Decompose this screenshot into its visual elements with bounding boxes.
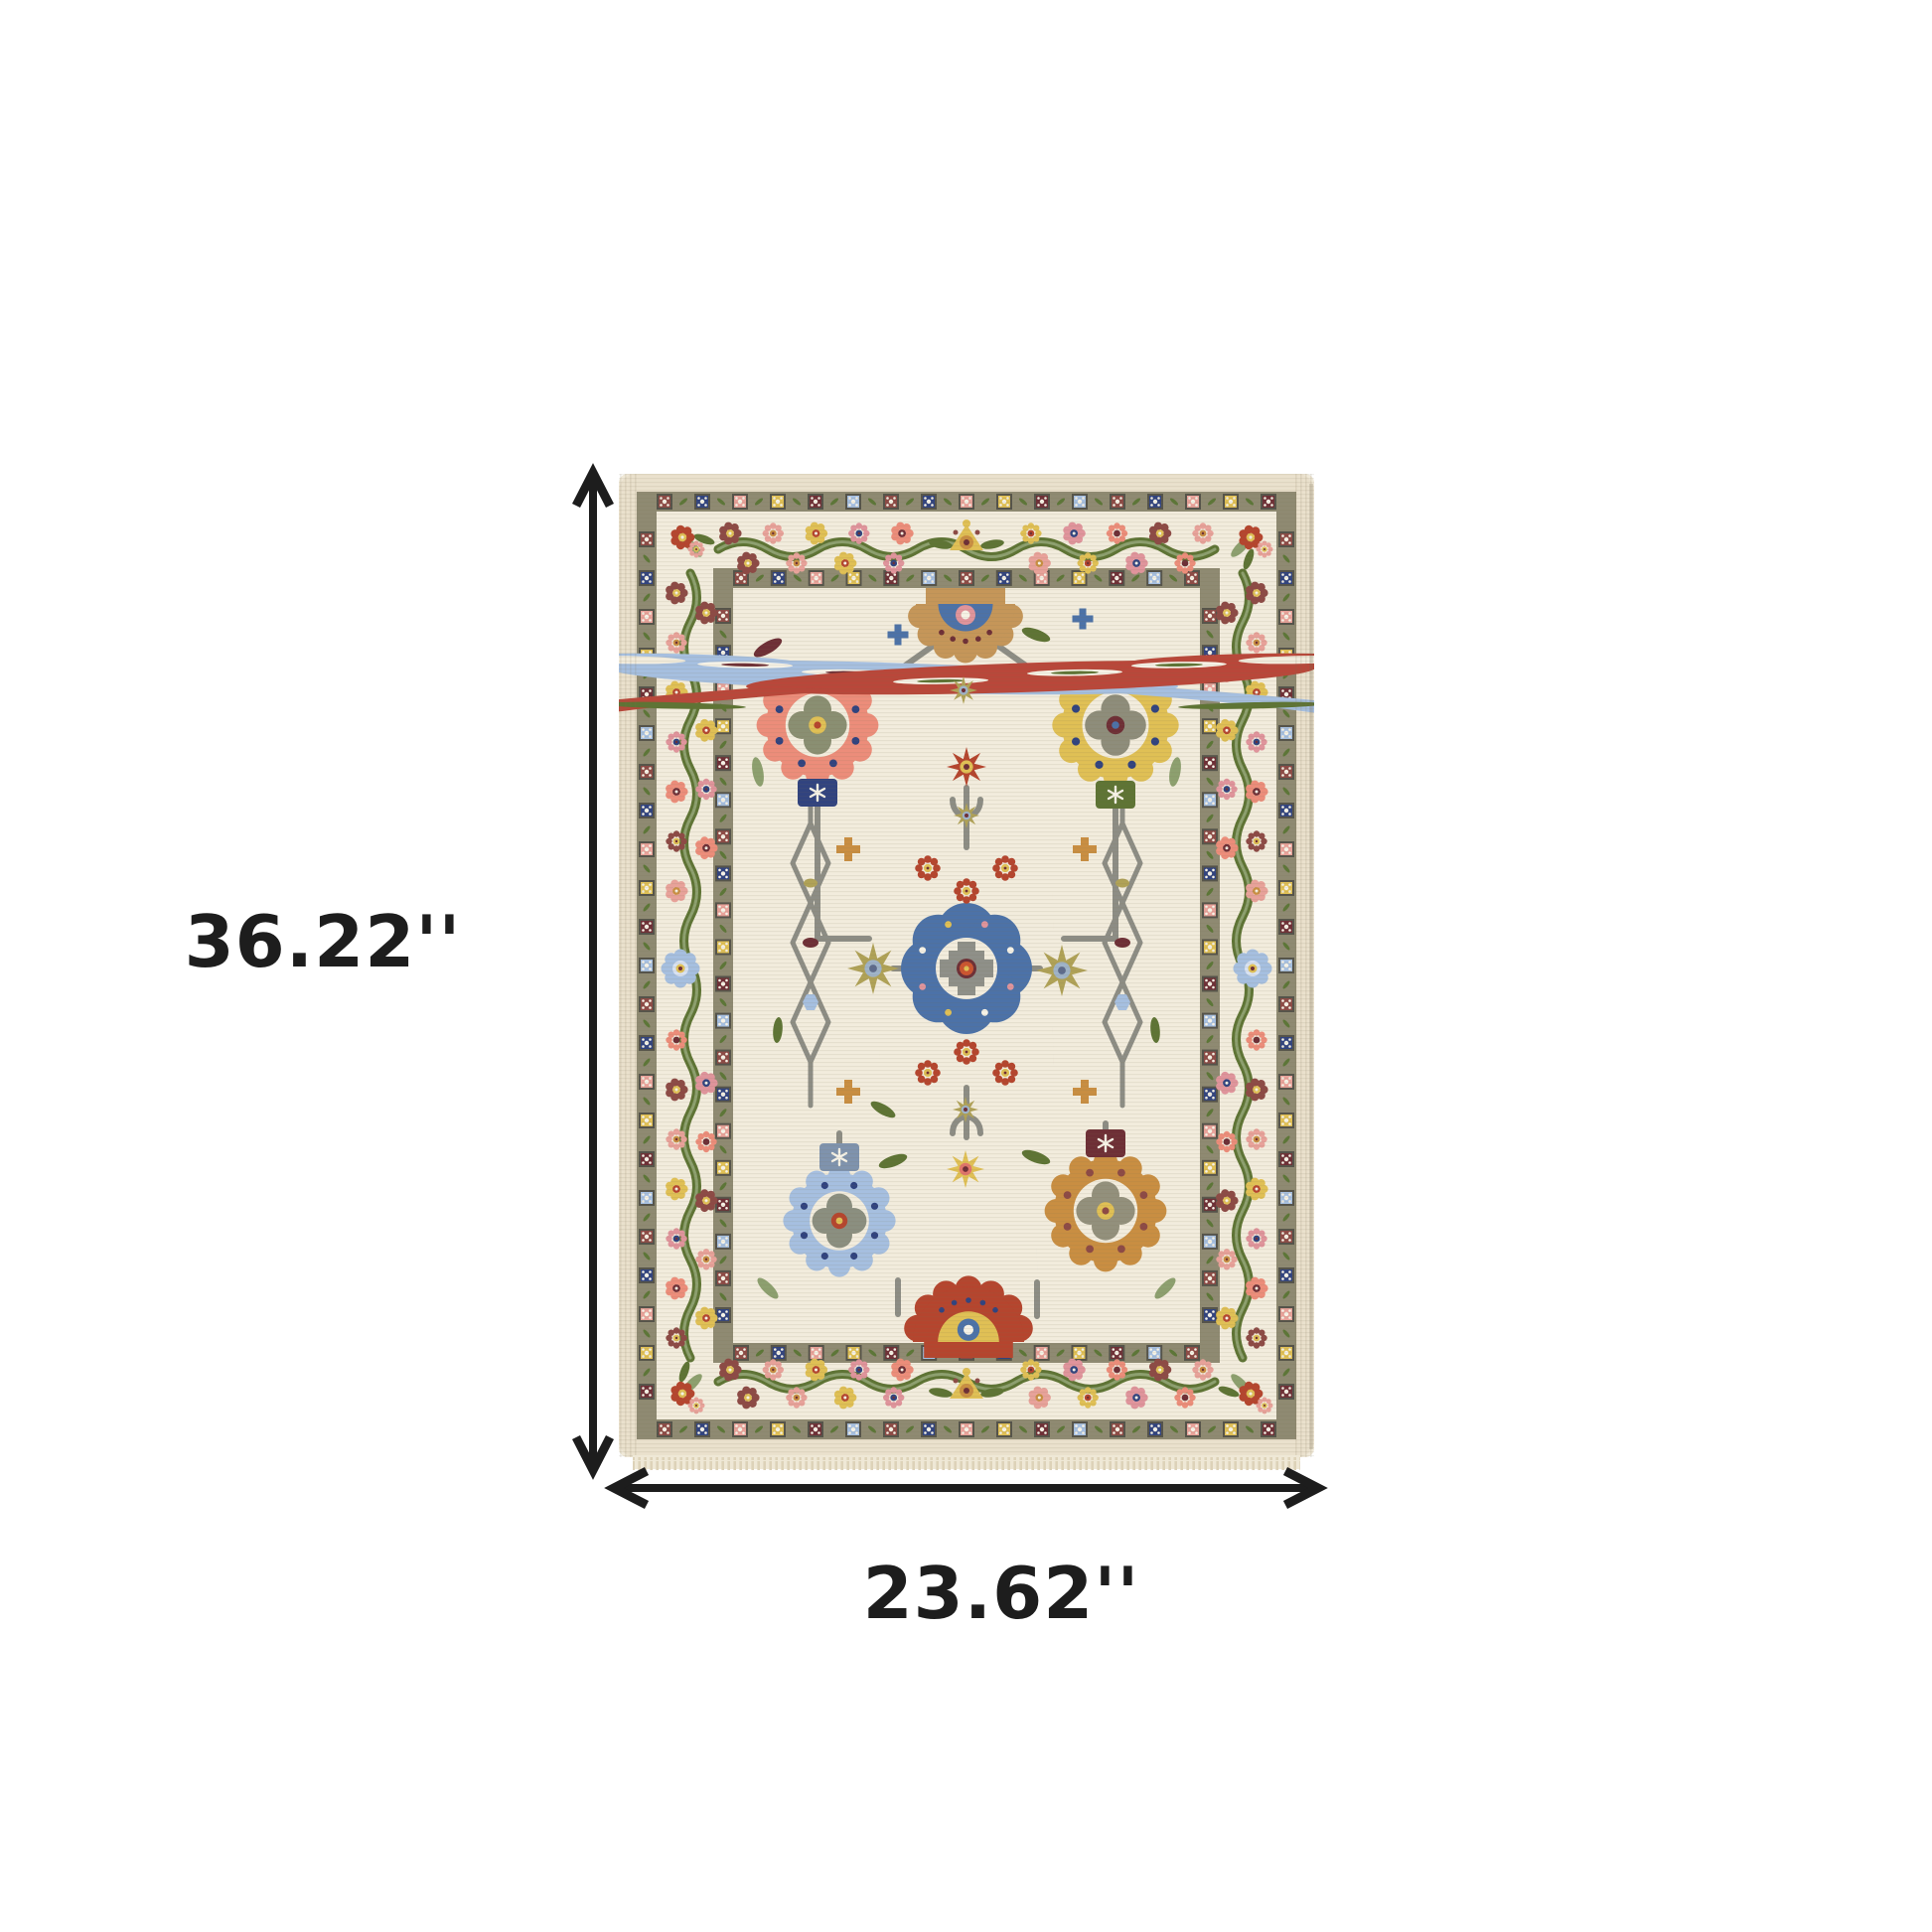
arrow-up-icon bbox=[576, 473, 610, 506]
width-dimension-label: 23.62'' bbox=[863, 1552, 1140, 1635]
arrow-right-icon bbox=[1285, 1471, 1318, 1505]
width-arrow bbox=[614, 1471, 1318, 1505]
arrow-down-icon bbox=[576, 1437, 610, 1470]
arrow-left-icon bbox=[614, 1471, 647, 1505]
rug-photo bbox=[619, 474, 1314, 1471]
rug-artwork bbox=[619, 474, 1314, 1471]
height-arrow bbox=[576, 473, 610, 1470]
height-dimension-label: 36.22'' bbox=[185, 900, 462, 983]
product-dimension-image: 36.22'' 23.62'' bbox=[0, 0, 1932, 1932]
